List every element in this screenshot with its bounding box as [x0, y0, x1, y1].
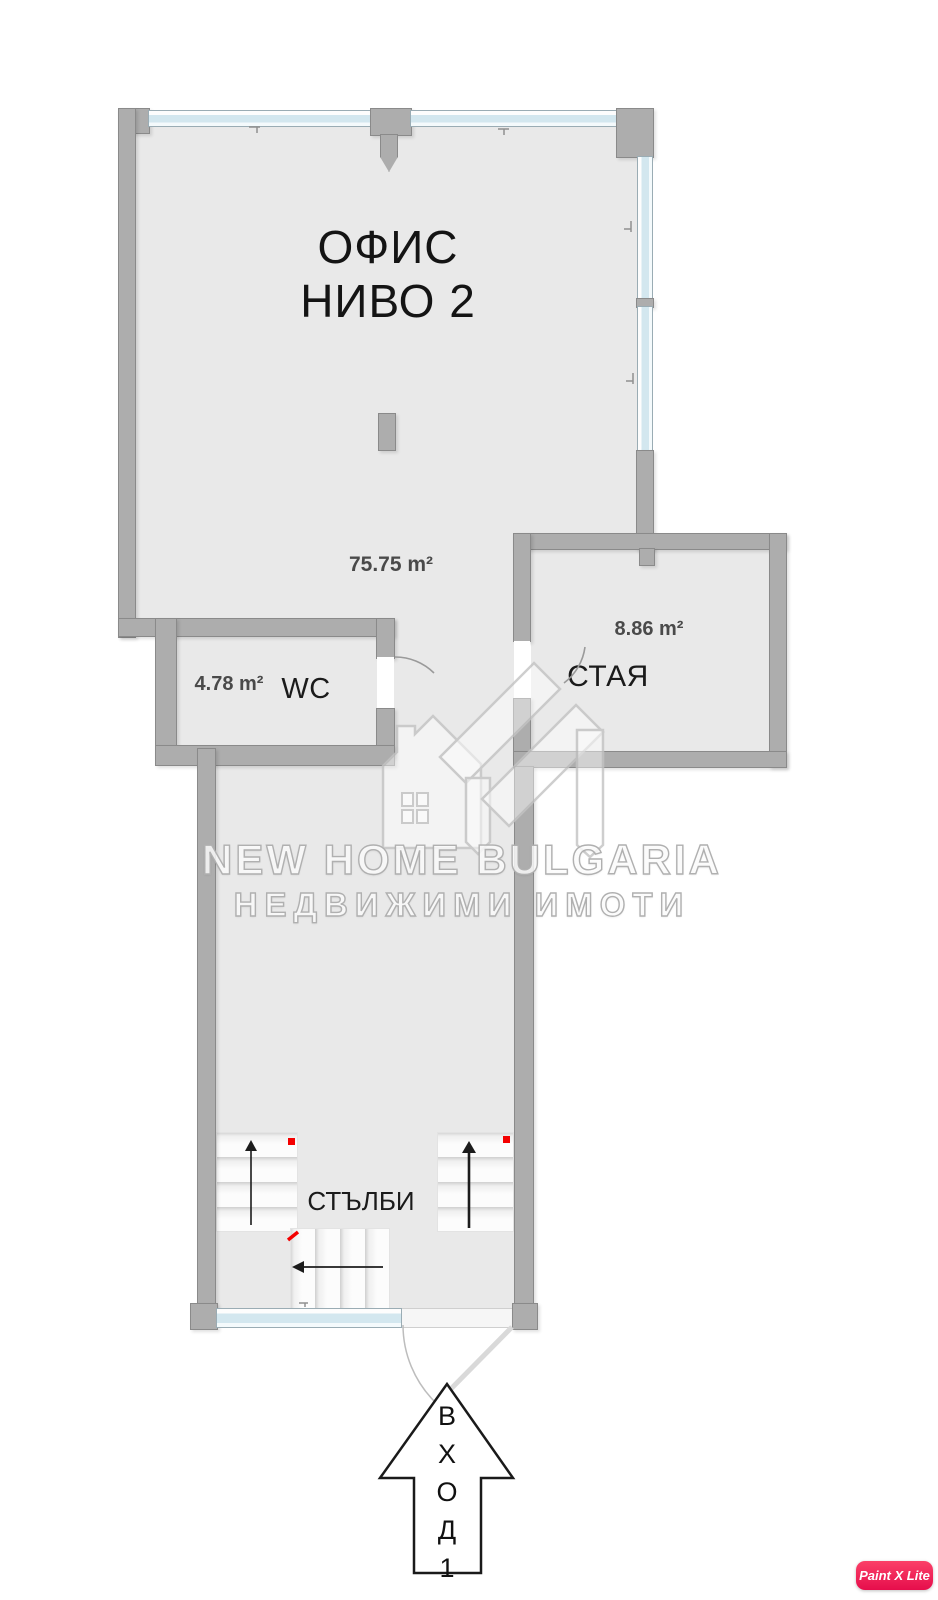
wall-staya-bottom	[513, 751, 787, 768]
office-area-label: 75.75 m²	[311, 553, 471, 577]
freestanding-column	[378, 413, 396, 451]
entrance-letter: 1	[427, 1549, 467, 1587]
stair-flight-left	[216, 1132, 298, 1232]
floor-plan-page: NEW HOME BULGARIA НЕДВИЖИМИ ИМОТИ ОФИС Н…	[0, 0, 938, 1600]
red-marker-left	[288, 1138, 295, 1145]
window-top-left	[148, 110, 372, 127]
red-marker-right	[503, 1136, 510, 1143]
entrance-letter: Д	[427, 1511, 467, 1549]
office-name-line2: НИВО 2	[133, 274, 643, 328]
entrance-letter: О	[427, 1473, 467, 1511]
entrance-letter: В	[427, 1397, 467, 1435]
stairs-label: СТЪЛБИ	[286, 1186, 436, 1217]
wall-wc-right-upper	[376, 618, 395, 659]
office-room-label: ОФИС НИВО 2	[133, 220, 643, 328]
floor-staya	[531, 550, 769, 756]
corner-post-bottom-right	[512, 1303, 538, 1330]
entrance-door-leaf-icon	[437, 1327, 512, 1403]
wall-corridor-left	[197, 748, 216, 1313]
wall-staya-left-lower	[513, 698, 531, 758]
entrance-label: В Х О Д 1	[427, 1397, 467, 1587]
watermark-line1: NEW HOME BULGARIA	[150, 836, 774, 884]
staya-door-opening	[514, 641, 530, 699]
paint-x-lite-badge: Paint X Lite	[856, 1561, 933, 1590]
staya-area-label: 8.86 m²	[589, 618, 709, 641]
watermark-line2: НЕДВИЖИМИ ИМОТИ	[150, 886, 774, 924]
entrance-door-arc-icon	[403, 1325, 435, 1402]
wall-wc-bottom	[155, 745, 395, 766]
office-name-line1: ОФИС	[133, 220, 643, 274]
floor-passage	[393, 550, 516, 772]
wall-staya-notch	[639, 548, 655, 566]
window-top-right	[410, 110, 618, 127]
stair-flight-right	[437, 1132, 514, 1232]
staya-room-label: СТАЯ	[547, 660, 669, 694]
entrance-door-opening	[402, 1308, 514, 1328]
pillar-head	[370, 108, 412, 136]
corner-post-bottom-left	[190, 1303, 218, 1330]
entrance-letter: Х	[427, 1435, 467, 1473]
wall-staya-right	[769, 533, 787, 768]
wall-left	[118, 108, 136, 638]
stair-flight-bottom	[290, 1228, 390, 1310]
corner-post-top-right	[616, 108, 654, 158]
wc-room-label: WC	[266, 673, 346, 706]
window-right-lower	[637, 306, 653, 454]
window-bottom	[216, 1308, 402, 1328]
wall-staya-left-upper	[513, 533, 531, 642]
wc-door-opening	[377, 657, 394, 710]
